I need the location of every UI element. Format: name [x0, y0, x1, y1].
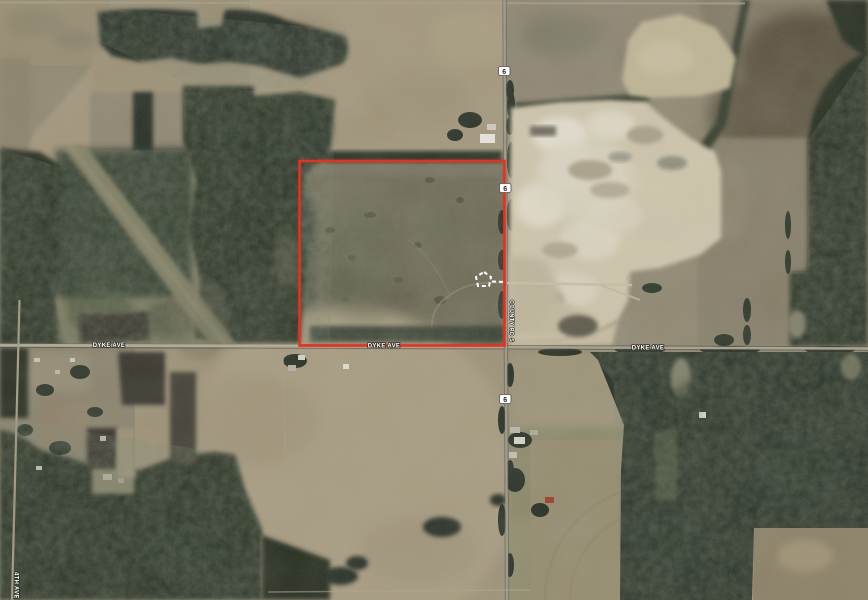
svg-text:6: 6	[503, 186, 507, 193]
svg-text:DYKE AVE: DYKE AVE	[632, 346, 664, 352]
svg-text:DYKE AVE: DYKE AVE	[368, 344, 400, 350]
svg-text:COUNTY RD S: COUNTY RD S	[508, 300, 514, 342]
svg-text:6: 6	[503, 397, 507, 404]
svg-text:DYKE AVE: DYKE AVE	[93, 343, 125, 349]
svg-text:4TH AVE: 4TH AVE	[13, 572, 19, 599]
svg-text:6: 6	[502, 69, 506, 76]
